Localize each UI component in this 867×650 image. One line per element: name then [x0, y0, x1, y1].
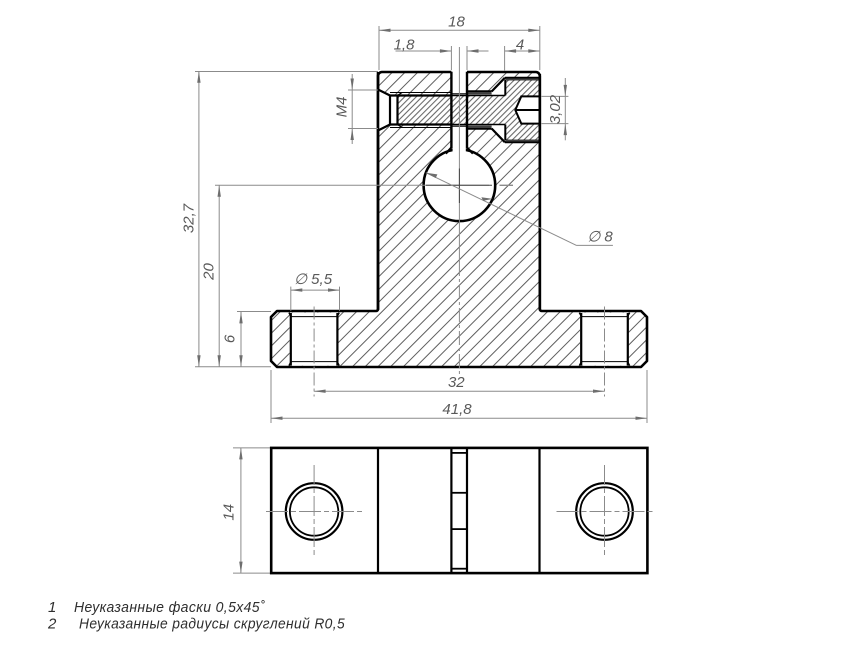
svg-text:14: 14	[221, 504, 238, 521]
svg-text:2: 2	[47, 616, 57, 633]
svg-text:32,7: 32,7	[181, 203, 198, 233]
svg-text:M4: M4	[334, 97, 351, 118]
svg-text:Неуказанные радиусы скруглений: Неуказанные радиусы скруглений R0,5	[79, 616, 345, 633]
svg-text:1: 1	[48, 599, 57, 616]
svg-text:∅ 5,5: ∅ 5,5	[294, 271, 333, 288]
svg-text:32: 32	[448, 374, 465, 391]
svg-text:20: 20	[201, 263, 218, 281]
svg-text:41,8: 41,8	[442, 401, 472, 418]
svg-text:Неуказанные фаски 0,5x45˚: Неуказанные фаски 0,5x45˚	[74, 599, 266, 616]
svg-text:3,02: 3,02	[547, 94, 564, 124]
svg-text:∅ 8: ∅ 8	[587, 229, 613, 246]
svg-text:18: 18	[448, 14, 465, 31]
svg-text:6: 6	[222, 334, 239, 343]
svg-text:4: 4	[516, 37, 524, 54]
svg-text:1,8: 1,8	[394, 37, 416, 54]
